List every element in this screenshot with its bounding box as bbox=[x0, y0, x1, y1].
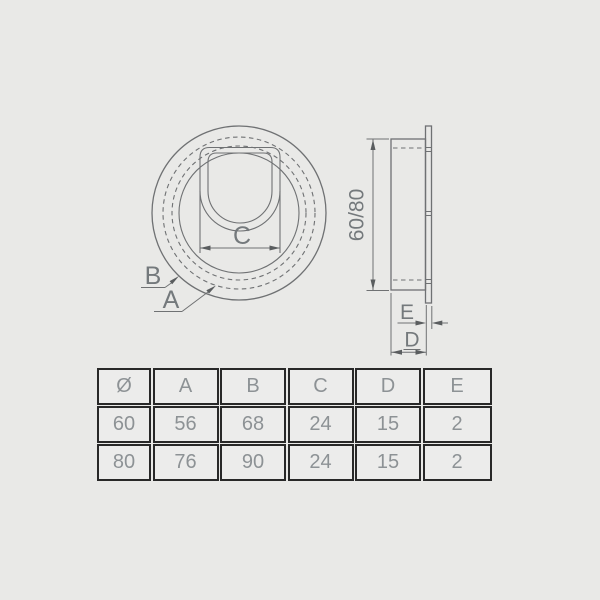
arrowhead-down bbox=[371, 280, 376, 291]
table-cell: 80 bbox=[97, 444, 151, 481]
table-header-b: B bbox=[220, 368, 286, 405]
grommet-dimension-drawing: C B A bbox=[0, 0, 600, 600]
dim-e-label: E bbox=[400, 301, 414, 324]
table-cell: 15 bbox=[355, 444, 421, 481]
table-cell: 15 bbox=[355, 406, 421, 443]
inner-lid-circle bbox=[179, 153, 299, 273]
table-header-d: D bbox=[355, 368, 421, 405]
arrowhead-d-left bbox=[392, 350, 403, 355]
table-cell: 24 bbox=[288, 444, 354, 481]
table-cell: 24 bbox=[288, 406, 354, 443]
table-cell: 2 bbox=[423, 406, 492, 443]
table-header-a: A bbox=[153, 368, 219, 405]
arrowhead-d-right bbox=[416, 350, 427, 355]
label-a: A bbox=[163, 286, 180, 314]
table-header-c: C bbox=[288, 368, 354, 405]
table-cell: 90 bbox=[220, 444, 286, 481]
hidden-circle-outer bbox=[163, 137, 315, 289]
arrowhead-e-right bbox=[416, 321, 427, 326]
cable-slot-inner-arc bbox=[208, 191, 272, 223]
arrowhead-right bbox=[270, 246, 281, 251]
grommet-body bbox=[391, 139, 426, 290]
dim-d-label: D bbox=[404, 329, 419, 352]
arrowhead-left bbox=[200, 246, 211, 251]
dimension-d: D bbox=[391, 329, 426, 355]
table-cell: 56 bbox=[153, 406, 219, 443]
dimension-c: C bbox=[200, 222, 280, 251]
grommet-flange bbox=[426, 126, 432, 303]
hidden-circle-inner bbox=[172, 146, 306, 280]
table-header-e: E bbox=[423, 368, 492, 405]
dim-height-label: 60/80 bbox=[346, 189, 369, 242]
front-view: C B A bbox=[141, 126, 326, 314]
arrowhead-up bbox=[371, 140, 376, 151]
dimension-e: E bbox=[398, 301, 449, 326]
dimension-height: 60/80 bbox=[346, 139, 390, 291]
callout-a: A bbox=[154, 286, 216, 315]
outer-flange-circle bbox=[152, 126, 326, 300]
table-cell: 2 bbox=[423, 444, 492, 481]
flange-ticks bbox=[426, 148, 432, 284]
dimension-table: Ø A B C D E 60 56 68 24 15 2 80 76 90 24… bbox=[97, 368, 492, 481]
dim-c-label: C bbox=[233, 222, 251, 250]
arrowhead-e-left bbox=[432, 321, 443, 326]
table-cell: 76 bbox=[153, 444, 219, 481]
label-b: B bbox=[145, 262, 162, 290]
table-header-diameter: Ø bbox=[97, 368, 151, 405]
cable-slot-inner bbox=[208, 153, 272, 191]
technical-drawing: C B A bbox=[0, 0, 600, 600]
side-view: 60/80 E D bbox=[346, 126, 449, 356]
table-cell: 60 bbox=[97, 406, 151, 443]
table-cell: 68 bbox=[220, 406, 286, 443]
